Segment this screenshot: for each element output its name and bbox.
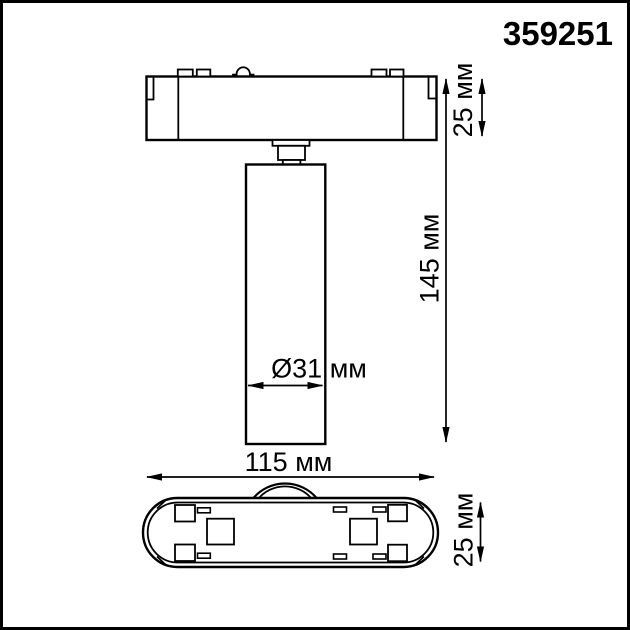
- arrow-left-icon: [146, 473, 162, 480]
- technical-drawing-page: 25 мм 145 мм Ø31 мм 115 мм: [0, 0, 630, 630]
- bottom-view: [143, 483, 438, 567]
- track-light-dimension-drawing: 25 мм 145 мм Ø31 мм 115 мм: [3, 3, 627, 627]
- mount-pad: [388, 505, 407, 522]
- arrow-up-icon: [478, 78, 485, 94]
- contact-slot: [373, 507, 386, 512]
- contact-slot: [198, 553, 211, 558]
- contact-slot: [334, 554, 347, 559]
- adapter-body: [278, 146, 305, 160]
- magnet-window: [207, 519, 234, 545]
- contact-tab-icon: [372, 70, 387, 77]
- mount-pad: [388, 545, 407, 562]
- front-view: [147, 67, 437, 444]
- contact-slot: [373, 554, 386, 559]
- dimension-label-spot-diameter: Ø31 мм: [271, 354, 367, 384]
- contact-slot: [198, 508, 211, 513]
- dimension-base-height: 25 мм: [448, 63, 486, 138]
- dimension-label-base-depth: 25 мм: [448, 493, 478, 568]
- lamp-cylinder: [246, 165, 325, 445]
- contact-tab-icon: [178, 70, 193, 77]
- contact-slot: [334, 507, 347, 512]
- dimension-label-base-height: 25 мм: [448, 63, 478, 138]
- contact-tab-icon: [197, 70, 211, 77]
- arrow-down-icon: [442, 427, 449, 443]
- dimension-label-overall-height: 145 мм: [414, 214, 444, 304]
- dimension-label-base-width: 115 мм: [245, 447, 333, 477]
- track-base-body: [147, 77, 437, 141]
- dimension-base-width: 115 мм: [146, 447, 435, 481]
- mount-pad: [175, 505, 195, 522]
- arrow-down-icon: [478, 121, 485, 137]
- product-code: 359251: [503, 15, 613, 52]
- arrow-right-icon: [419, 473, 435, 480]
- magnet-window: [350, 519, 377, 545]
- dimension-base-depth: 25 мм: [448, 493, 484, 568]
- mount-pad: [175, 545, 195, 562]
- contact-tab-icon: [390, 70, 404, 77]
